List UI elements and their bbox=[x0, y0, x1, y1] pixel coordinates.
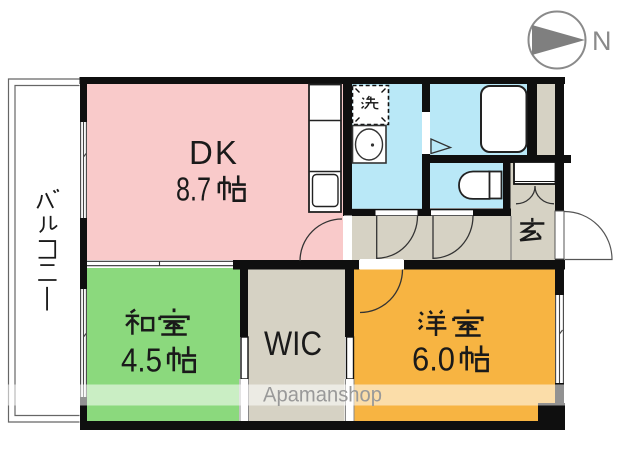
svg-text:4.5: 4.5 bbox=[121, 342, 162, 379]
svg-text:6.0: 6.0 bbox=[412, 341, 455, 378]
svg-text:N: N bbox=[592, 26, 612, 56]
svg-text:WIC: WIC bbox=[264, 325, 322, 363]
svg-text:Apamanshop: Apamanshop bbox=[263, 384, 382, 407]
svg-text:DK: DK bbox=[189, 134, 239, 171]
svg-text:8.7: 8.7 bbox=[176, 171, 211, 208]
